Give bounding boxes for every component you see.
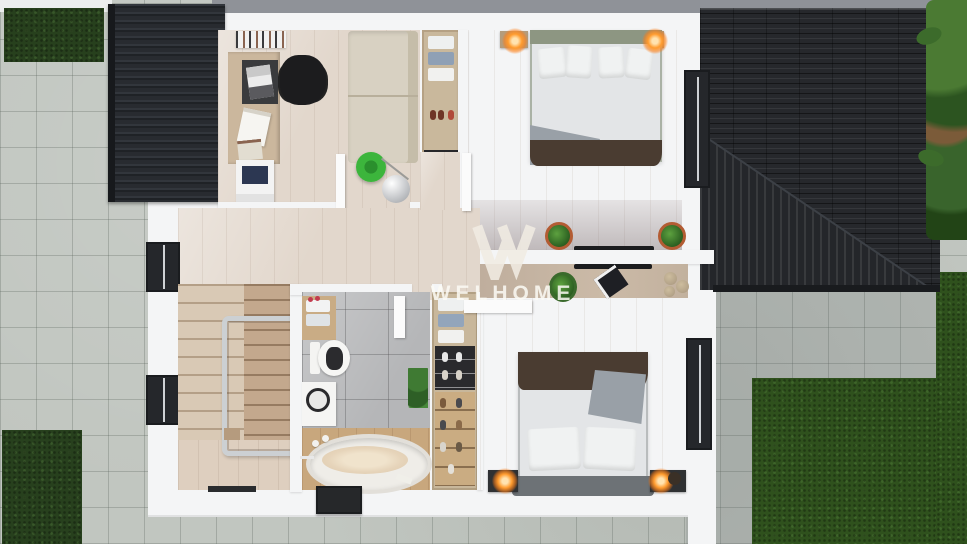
shoe-pair [440,420,446,430]
bedroom-top-shadow [468,200,682,252]
cosmetics [315,296,320,301]
sofa-cushion-seam [348,95,418,97]
towel-stack [306,314,330,326]
folded-clothes [428,52,454,65]
shoe-pair [448,110,454,120]
folded-clothes [438,330,464,343]
office-door [336,154,345,210]
tub-faucet [300,456,314,459]
shoe-cabinet [435,346,475,390]
floor-lamp-sphere [382,175,410,203]
folded-clothes [428,68,454,81]
office-sofa [348,31,418,163]
west-window [146,242,180,292]
folded-towels [428,36,454,49]
pillow [537,47,568,80]
shoe-pair [456,370,462,380]
cosmetics [308,297,313,302]
laptop [246,64,274,99]
shoe-pair [442,352,448,362]
shoe-pair [440,398,446,408]
basket [664,272,677,285]
decor-sphere [668,472,681,485]
headboard [512,476,654,496]
roof-hip-section [700,8,940,290]
potted-plant [658,222,686,250]
soap [322,435,329,442]
shoe-pair [456,420,462,430]
bathroom-window [316,486,362,514]
grass-patch-bottom-left [2,430,82,544]
newel-post [224,428,240,440]
shoe-pair [440,442,446,452]
bedroom-bottom-console [480,264,688,298]
folded-towels [438,298,464,311]
bathroom-plant [408,368,428,408]
shoe-pair [456,352,462,362]
pillow [583,427,637,472]
floor-plan-scene: WELHOME [0,0,967,544]
wall-segment [290,284,302,492]
shoe-pair [430,110,436,120]
toilet-seat [326,347,343,370]
shoe-pair [456,442,462,452]
folded-clothes [438,314,464,327]
printer-device [242,166,268,184]
sink-bowl [306,388,330,412]
basket [676,280,689,293]
wall-segment [460,250,714,264]
shoe-pair [442,370,448,380]
shoe-pair [448,464,454,474]
bedroom-bottom-door [464,300,532,313]
office-bookshelf [236,31,286,48]
grass-patch-top-left [4,8,104,62]
bathroom-door [394,296,405,338]
bedroom-top-door [462,153,471,211]
flat-roof-top-left [108,4,225,202]
bedside-lamp-glow [502,28,528,54]
pillow [527,427,581,472]
doorway-threshold [420,152,460,210]
east-window [684,70,710,188]
shoe-pair [456,398,462,408]
magazine-stack [237,139,263,161]
office-chair [280,55,326,105]
pillow [597,46,625,78]
brown-blanket [530,140,662,166]
basket [664,286,675,297]
potted-plant [545,222,573,250]
east-window [686,338,712,450]
west-window [146,375,180,425]
lawn-bottom-right [752,378,967,544]
stair-mat [208,486,256,492]
lawn-right-edge [936,272,967,544]
pillow [565,45,593,79]
bedside-lamp-glow [642,28,668,54]
roof-eave-shadow [713,285,940,292]
bedside-lamp-glow [492,468,518,494]
bathtub-water [322,446,408,474]
shoe-pair [438,110,444,120]
main-roof [700,8,940,290]
soap [312,440,319,447]
